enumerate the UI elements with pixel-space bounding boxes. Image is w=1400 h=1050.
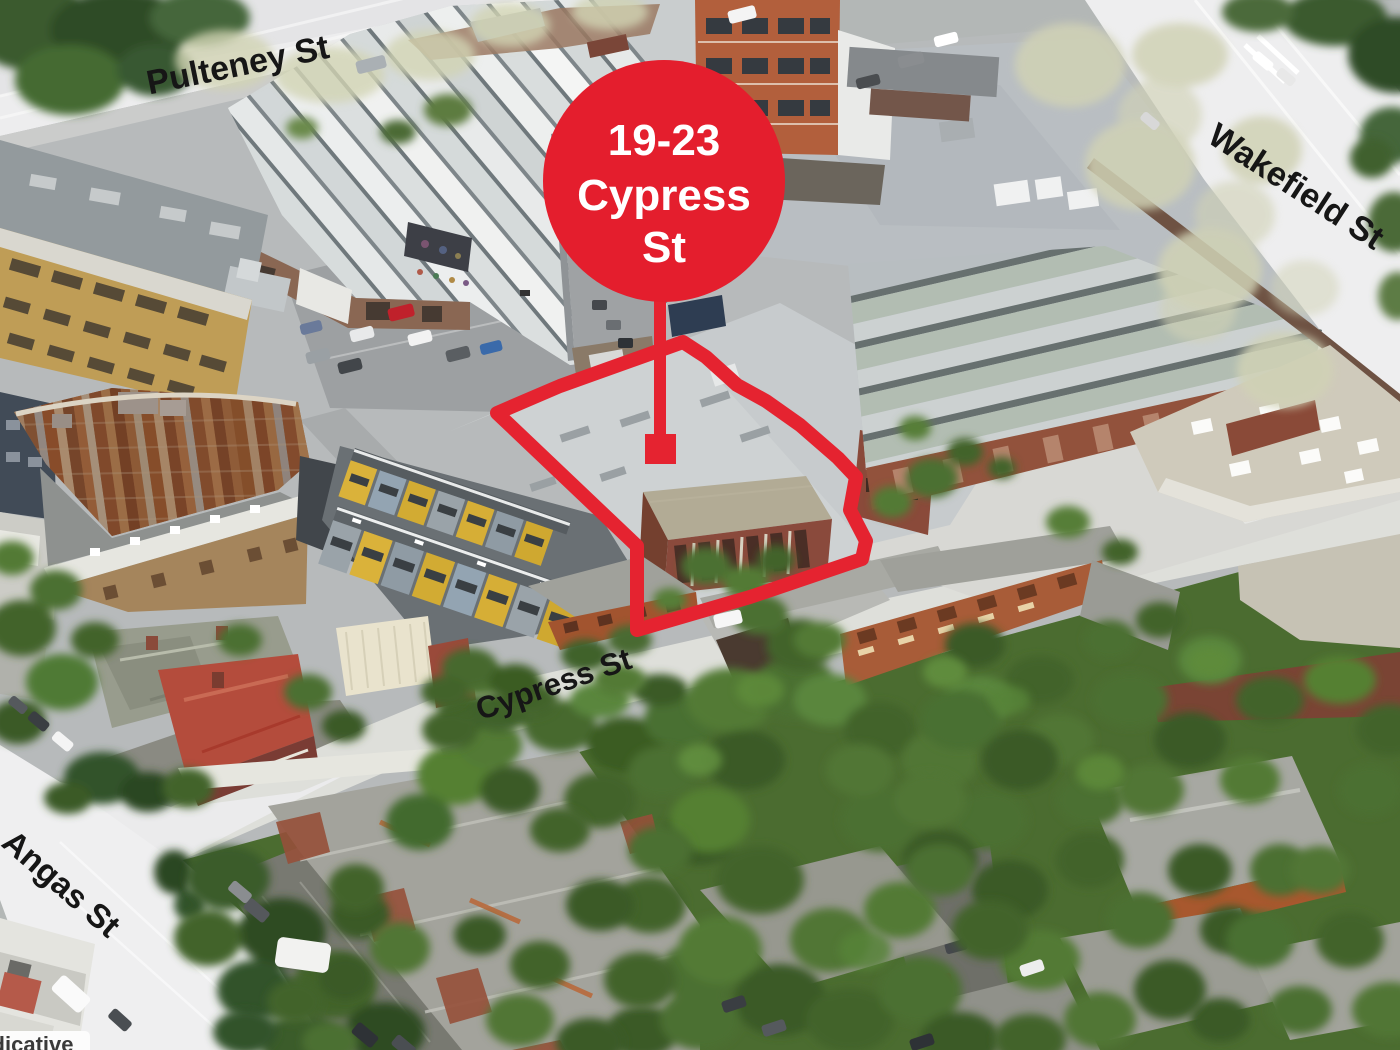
svg-text:Cypress: Cypress: [577, 171, 751, 220]
svg-text:St: St: [642, 223, 686, 272]
svg-text:19-23: 19-23: [608, 116, 721, 165]
svg-text:Indicative: Indicative: [0, 1032, 73, 1050]
